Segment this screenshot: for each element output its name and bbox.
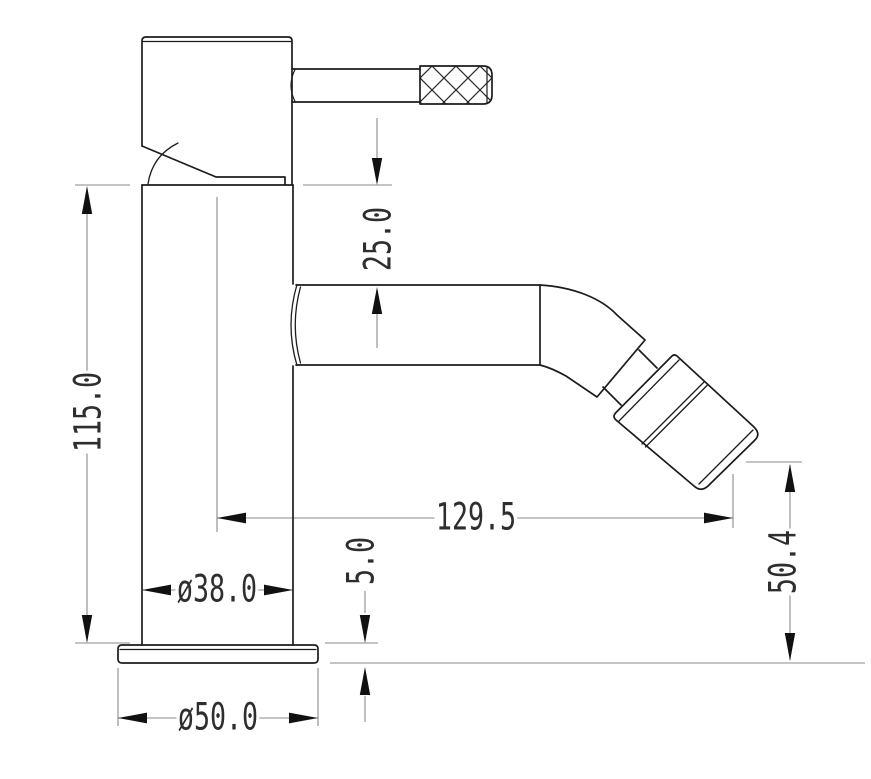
arrow-129-right bbox=[704, 513, 733, 524]
arrow-115-bottom bbox=[82, 615, 92, 643]
dimension-label-body-height: 115.0 bbox=[70, 370, 107, 453]
arrow-129-left bbox=[217, 513, 246, 524]
faucet-dimension-drawing: 25.0 115.0 129.5 50.4 5.0 ø38.0 ø50.0 bbox=[0, 0, 871, 779]
drawing-canvas bbox=[0, 0, 871, 779]
aerator-mid-joint-lines bbox=[642, 382, 708, 447]
arrow-38-left bbox=[142, 585, 171, 596]
spout-junction-arcs bbox=[291, 285, 301, 366]
spout-bend bbox=[540, 285, 645, 397]
knurled-grip bbox=[420, 66, 492, 104]
arrow-25-top bbox=[372, 158, 382, 185]
dimension-label-outlet-height: 50.4 bbox=[765, 528, 802, 595]
handle-body-fillet-arc bbox=[148, 143, 178, 184]
aerator-body bbox=[614, 355, 758, 489]
arrow-5-top bbox=[360, 615, 370, 643]
handle-body bbox=[142, 37, 292, 184]
dimension-label-spout-reach: 129.5 bbox=[434, 499, 517, 536]
extension-and-dimension-lines bbox=[75, 118, 865, 726]
arrow-50-4-top bbox=[785, 464, 795, 492]
arrow-25-bottom bbox=[372, 287, 382, 314]
dimension-label-base-thickness: 5.0 bbox=[343, 536, 380, 587]
aerator-cap-inner-line bbox=[699, 430, 753, 484]
arrow-115-top bbox=[82, 186, 92, 214]
dimension-label-base-diameter: ø50.0 bbox=[176, 699, 259, 736]
arrow-38-right bbox=[264, 585, 293, 596]
base-plate bbox=[118, 645, 318, 663]
handle-body-bottom-edge bbox=[142, 146, 285, 184]
arrow-50-left bbox=[118, 713, 147, 724]
dimension-label-spout-top-offset: 25.0 bbox=[360, 205, 397, 272]
arrow-5-bottom bbox=[360, 667, 370, 695]
dimension-arrowheads bbox=[82, 158, 795, 723]
handle-lever bbox=[292, 69, 420, 102]
dimension-label-body-diameter: ø38.0 bbox=[175, 571, 258, 608]
arrow-50-right bbox=[289, 713, 318, 724]
spout-tube bbox=[296, 285, 540, 365]
aerator-near-face-inner-line bbox=[619, 360, 679, 421]
arrow-50-4-bottom bbox=[785, 633, 795, 661]
